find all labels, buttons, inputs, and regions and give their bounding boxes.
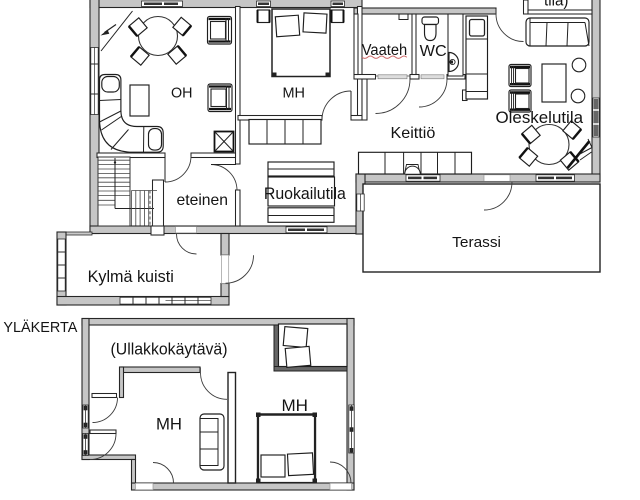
svg-text:Terassi: Terassi xyxy=(452,234,501,251)
svg-text:YLÄKERTA: YLÄKERTA xyxy=(3,319,78,336)
svg-text:Ruokailutila: Ruokailutila xyxy=(264,185,346,203)
svg-text:Keittiö: Keittiö xyxy=(391,125,436,142)
svg-text:MH: MH xyxy=(156,415,182,434)
svg-text:eteinen: eteinen xyxy=(177,192,229,209)
svg-text:WC: WC xyxy=(420,43,447,60)
svg-text:MH: MH xyxy=(283,85,306,102)
svg-text:Oleskelutila: Oleskelutila xyxy=(496,108,584,127)
svg-text:(Ullakkokäytävä): (Ullakkokäytävä) xyxy=(111,340,228,358)
svg-text:MH: MH xyxy=(282,396,309,415)
svg-text:tila): tila) xyxy=(544,0,569,10)
svg-text:OH: OH xyxy=(171,85,193,101)
svg-text:Kylmä kuisti: Kylmä kuisti xyxy=(88,267,174,286)
